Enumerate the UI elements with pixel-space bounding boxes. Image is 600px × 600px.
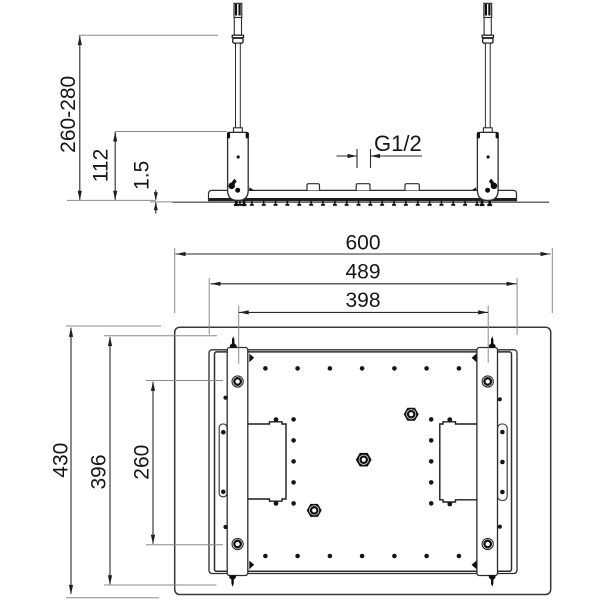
- svg-text:430: 430: [50, 443, 73, 478]
- svg-text:112: 112: [90, 149, 113, 182]
- svg-text:260-280: 260-280: [57, 76, 80, 153]
- svg-text:260: 260: [131, 445, 154, 480]
- svg-text:396: 396: [88, 454, 111, 489]
- svg-text:398: 398: [345, 289, 380, 312]
- svg-text:489: 489: [345, 260, 380, 283]
- svg-text:1.5: 1.5: [131, 161, 154, 190]
- svg-text:G1/2: G1/2: [374, 131, 422, 156]
- svg-text:600: 600: [345, 231, 380, 254]
